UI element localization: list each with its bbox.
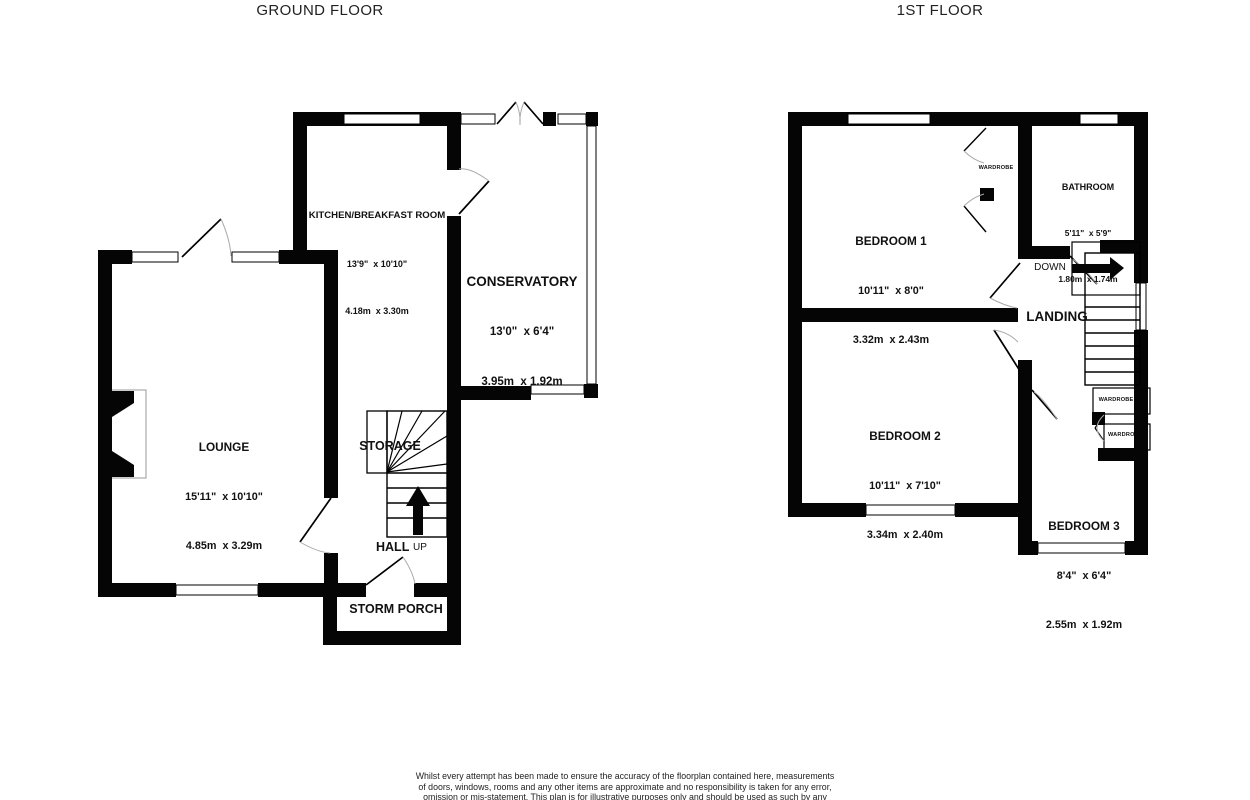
room-dims-imperial: 5'11" x 5'9" <box>1058 229 1117 239</box>
room-name: LOUNGE <box>185 441 263 454</box>
winder-line <box>387 464 447 472</box>
down-label: DOWN <box>1034 262 1066 273</box>
room-dims-metric: 1.80m x 1.74m <box>1058 275 1117 285</box>
wardrobe1-door-leaf-upper <box>964 128 986 151</box>
room-dims-imperial: 15'11" x 10'10" <box>185 491 263 503</box>
bedroom2-door-leaf <box>994 330 1020 371</box>
bedroom1-door-leaf <box>990 263 1020 298</box>
first-floor-title: 1ST FLOOR <box>897 2 984 19</box>
porch-hall-door-arc <box>403 557 415 584</box>
room-name: KITCHEN/BREAKFAST ROOM <box>309 211 445 222</box>
room-dims-metric: 3.32m x 2.43m <box>853 334 929 346</box>
floorplan-page: GROUND FLOOR 1ST FLOOR KITCHEN/BREAKFAST… <box>0 0 1250 800</box>
room-name: BEDROOM 2 <box>867 430 943 443</box>
room-name: BEDROOM 1 <box>853 235 929 248</box>
room-name: BEDROOM 3 <box>1046 520 1122 533</box>
disclaimer: Whilst every attempt has been made to en… <box>345 771 905 800</box>
bathroom-window <box>1080 114 1118 124</box>
bathroom-label: BATHROOM 5'11" x 5'9" 1.80m x 1.74m <box>1058 146 1117 303</box>
disclaimer-line: Whilst every attempt has been made to en… <box>345 771 905 782</box>
room-dims-imperial: 10'11" x 7'10" <box>867 480 943 492</box>
bedroom3-wardrobe-side-label: WARDROBE <box>1108 432 1134 438</box>
ground-floor-title: GROUND FLOOR <box>256 2 383 19</box>
room-dims-metric: 4.85m x 3.29m <box>185 540 263 552</box>
lounge-rear-door-leaf <box>182 219 221 257</box>
ground-stairs <box>367 411 447 537</box>
wardrobe1-door-arc-upper <box>964 151 984 163</box>
landing-label: LANDING <box>1026 309 1088 324</box>
bedroom3-door-leaf <box>1032 390 1057 419</box>
kitchen-window <box>344 114 420 124</box>
room-dims-metric: 3.95m x 1.92m <box>466 376 577 389</box>
french-door-left-leaf <box>497 102 516 124</box>
room-name: CONSERVATORY <box>466 274 577 289</box>
up-arrow-icon <box>406 486 430 535</box>
conservatory-top-window-2 <box>558 114 586 124</box>
bedroom3-wardrobe-top-label: WARDROBE <box>1099 397 1134 403</box>
porch-hall-door-leaf <box>366 557 403 585</box>
lounge-top-window-2 <box>232 252 279 262</box>
french-door-right-leaf <box>524 102 543 124</box>
up-label: UP <box>413 542 427 553</box>
lounge-label: LOUNGE 15'11" x 10'10" 4.85m x 3.29m <box>185 405 263 571</box>
room-dims-metric: 3.34m x 2.40m <box>867 529 943 541</box>
kitchen-conservatory-door-arc <box>459 169 489 181</box>
room-dims-imperial: 13'9" x 10'10" <box>309 259 445 269</box>
floorplan-drawing <box>0 0 1250 800</box>
kitchen-conservatory-door-leaf <box>459 181 489 214</box>
bedroom3-label: BEDROOM 3 8'4" x 6'4" 2.55m x 1.92m <box>1046 484 1122 650</box>
lounge-bottom-window <box>176 585 258 595</box>
lounge-hall-door-leaf <box>300 498 331 542</box>
bedroom1-door-arc <box>990 298 1017 308</box>
room-dims-imperial: 10'11" x 8'0" <box>853 285 929 297</box>
kitchen-label: KITCHEN/BREAKFAST ROOM 13'9" x 10'10" 4.… <box>309 175 445 334</box>
lounge-top-window-1 <box>132 252 178 262</box>
room-name: BATHROOM <box>1058 182 1117 192</box>
room-dims-imperial: 13'0" x 6'4" <box>466 326 577 339</box>
storm-porch-label: STORM PORCH <box>349 602 443 616</box>
bedroom2-label: BEDROOM 2 10'11" x 7'10" 3.34m x 2.40m <box>867 394 943 560</box>
room-dims-imperial: 8'4" x 6'4" <box>1046 570 1122 582</box>
bedroom1-wardrobe-label: WARDROBE <box>979 165 1014 171</box>
bedroom1-window <box>848 114 930 124</box>
bedroom1-label: BEDROOM 1 10'11" x 8'0" 3.32m x 2.43m <box>853 199 929 365</box>
lounge-rear-door-arc <box>221 219 231 256</box>
disclaimer-line: of doors, windows, rooms and any other i… <box>345 782 905 793</box>
conservatory-top-window-1 <box>461 114 495 124</box>
lounge-hall-door-arc <box>300 542 330 553</box>
storage-label: STORAGE <box>359 439 421 453</box>
hall-label: HALL <box>376 540 409 554</box>
conservatory-label: CONSERVATORY 13'0" x 6'4" 3.95m x 1.92m <box>466 238 577 407</box>
room-dims-metric: 2.55m x 1.92m <box>1046 619 1122 631</box>
room-dims-metric: 4.18m x 3.30m <box>309 306 445 316</box>
disclaimer-line: omission or mis-statement. This plan is … <box>345 792 905 800</box>
wardrobe1-door-leaf-lower <box>964 206 986 232</box>
